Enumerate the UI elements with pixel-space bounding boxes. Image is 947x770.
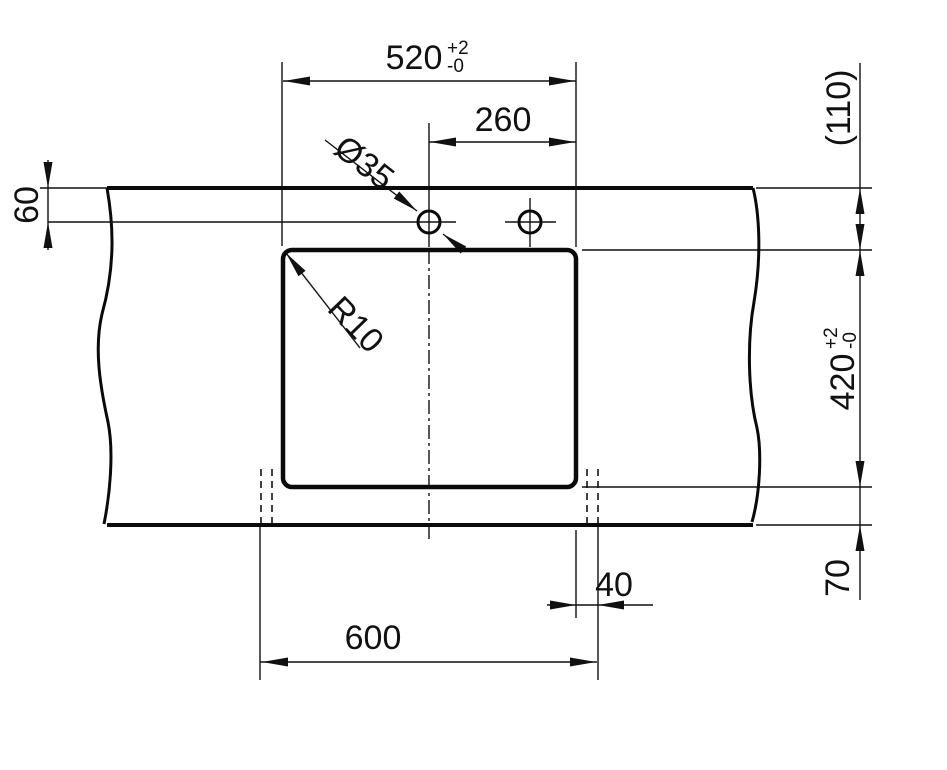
dim-corner-radius-label: R10 bbox=[320, 289, 391, 360]
dim-cutout-height-label: 420 bbox=[824, 354, 862, 411]
arrow-110-top bbox=[856, 188, 865, 214]
arrow-520-left bbox=[284, 77, 310, 86]
dim-front-overhang-label: 70 bbox=[819, 559, 857, 597]
arrow-420-bottom bbox=[856, 461, 865, 487]
dim-edge-to-hole-label: 60 bbox=[8, 186, 46, 224]
arrow-260-right bbox=[549, 138, 575, 147]
break-line-left bbox=[98, 188, 112, 524]
arrow-600-right bbox=[570, 658, 596, 667]
arrow-70-bottom bbox=[856, 525, 865, 551]
break-line-right bbox=[749, 188, 759, 522]
dim-cutout-height-tol-minus: -0 bbox=[840, 332, 861, 349]
dim-rear-overhang-ref-label: (110) bbox=[820, 70, 858, 147]
dim-cutout-height-tol-plus: +2 bbox=[821, 327, 842, 349]
arrowheads bbox=[44, 77, 865, 667]
dim-cutout-width-tol-minus: -0 bbox=[447, 56, 464, 77]
arrow-60-top bbox=[44, 162, 53, 188]
arrow-420-top bbox=[856, 250, 865, 276]
dim-side-offset-label: 40 bbox=[595, 566, 633, 604]
arrow-110-bottom bbox=[856, 224, 865, 250]
sink-cutout-drawing: 520 +2 -0 260 Ø35 R10 60 (110) 420 +2 -0… bbox=[0, 0, 947, 770]
arrow-520-right bbox=[549, 77, 575, 86]
dim-hole-spacing-label: 260 bbox=[475, 101, 532, 139]
dim-overall-width-label: 600 bbox=[345, 619, 402, 657]
arrow-40-left bbox=[550, 601, 576, 610]
arrow-hole-diameter-upper bbox=[394, 191, 420, 214]
arrow-60-bottom bbox=[44, 222, 53, 248]
arrow-260-left bbox=[430, 138, 456, 147]
dim-cutout-width-label: 520 bbox=[386, 39, 443, 77]
technical-drawing-page: 520 +2 -0 260 Ø35 R10 60 (110) 420 +2 -0… bbox=[0, 0, 947, 770]
arrow-600-left bbox=[262, 658, 288, 667]
